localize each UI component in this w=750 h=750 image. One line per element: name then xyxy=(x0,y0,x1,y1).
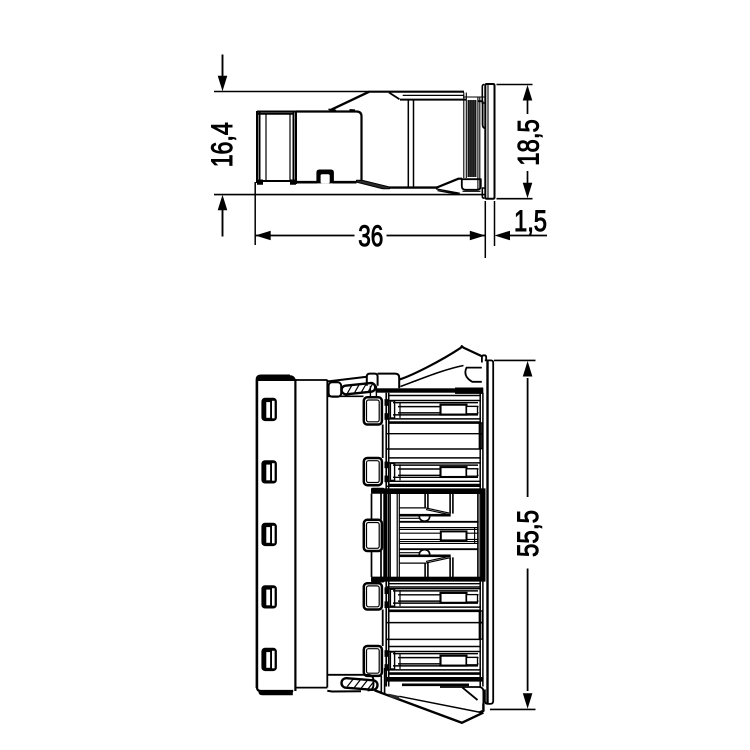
svg-text:18,5: 18,5 xyxy=(513,119,546,166)
svg-text:55,5: 55,5 xyxy=(512,510,545,557)
svg-text:1,5: 1,5 xyxy=(514,205,547,238)
svg-text:36: 36 xyxy=(358,220,383,253)
svg-text:16,4: 16,4 xyxy=(206,122,239,167)
